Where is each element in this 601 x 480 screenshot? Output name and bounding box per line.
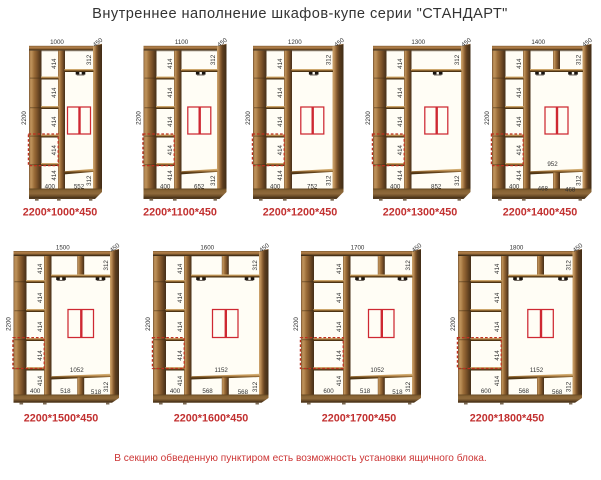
svg-text:312: 312 [103,260,110,271]
svg-text:414: 414 [177,375,184,386]
svg-text:568: 568 [202,388,213,395]
svg-text:312: 312 [454,54,461,65]
svg-text:312: 312 [326,54,333,65]
svg-text:414: 414 [516,170,523,181]
svg-text:414: 414 [397,144,404,155]
svg-text:1500: 1500 [56,245,70,252]
svg-text:1152: 1152 [215,367,229,374]
svg-text:414: 414 [336,321,343,332]
svg-text:414: 414 [37,321,44,332]
svg-text:518: 518 [60,388,71,395]
svg-text:312: 312 [210,175,217,186]
svg-text:600: 600 [323,388,334,395]
svg-text:414: 414 [397,87,404,98]
svg-text:2200*1100*450: 2200*1100*450 [143,206,217,218]
svg-text:1700: 1700 [351,245,365,252]
svg-text:2200*1600*450: 2200*1600*450 [174,412,248,424]
svg-text:952: 952 [547,161,558,168]
svg-text:400: 400 [270,184,281,191]
svg-text:312: 312 [86,54,93,65]
svg-text:414: 414 [51,144,58,155]
svg-text:312: 312 [86,175,93,186]
svg-text:518: 518 [91,389,102,396]
svg-text:312: 312 [454,175,461,186]
svg-text:312: 312 [576,175,583,186]
svg-text:652: 652 [194,183,205,190]
svg-text:1200: 1200 [288,39,302,46]
svg-text:414: 414 [516,116,523,127]
svg-text:414: 414 [51,87,58,98]
svg-text:2200: 2200 [293,317,300,331]
svg-text:414: 414 [397,116,404,127]
svg-text:414: 414 [277,144,284,155]
svg-text:414: 414 [167,58,174,69]
svg-text:414: 414 [494,350,501,361]
svg-text:1152: 1152 [530,367,544,374]
svg-text:414: 414 [516,58,523,69]
svg-text:568: 568 [552,389,563,396]
svg-text:414: 414 [336,263,343,274]
svg-text:1400: 1400 [531,39,545,46]
svg-text:414: 414 [51,116,58,127]
svg-text:312: 312 [252,381,259,392]
svg-text:450: 450 [333,36,346,48]
svg-text:600: 600 [481,388,492,395]
svg-text:414: 414 [494,263,501,274]
svg-text:2200*1200*450: 2200*1200*450 [263,206,337,218]
svg-text:2200: 2200 [245,111,252,125]
svg-text:312: 312 [103,381,110,392]
svg-text:414: 414 [277,170,284,181]
svg-text:2200: 2200 [145,317,152,331]
svg-text:2200*1400*450: 2200*1400*450 [503,206,577,218]
svg-text:414: 414 [177,321,184,332]
svg-text:2200: 2200 [484,111,491,125]
svg-text:414: 414 [167,170,174,181]
svg-text:450: 450 [92,36,105,48]
svg-text:2200: 2200 [135,111,142,125]
svg-text:414: 414 [51,170,58,181]
svg-text:450: 450 [216,36,229,48]
svg-text:312: 312 [566,260,573,271]
svg-text:400: 400 [509,184,520,191]
svg-text:568: 568 [238,389,249,396]
svg-text:450: 450 [411,242,424,254]
svg-text:568: 568 [519,388,530,395]
svg-text:400: 400 [45,184,56,191]
svg-text:1800: 1800 [510,245,524,252]
svg-text:414: 414 [397,58,404,69]
svg-text:2200: 2200 [450,317,457,331]
svg-text:552: 552 [74,183,85,190]
svg-text:2200*1300*450: 2200*1300*450 [383,206,457,218]
svg-text:414: 414 [37,263,44,274]
svg-text:1600: 1600 [200,245,214,252]
svg-text:752: 752 [307,183,318,190]
svg-text:312: 312 [252,260,259,271]
svg-text:414: 414 [516,144,523,155]
svg-text:414: 414 [336,292,343,303]
svg-text:414: 414 [277,87,284,98]
svg-text:312: 312 [326,175,333,186]
svg-text:414: 414 [516,87,523,98]
svg-text:400: 400 [170,388,181,395]
svg-text:1052: 1052 [70,367,84,374]
svg-text:400: 400 [160,184,171,191]
svg-text:2200: 2200 [365,111,372,125]
svg-text:1052: 1052 [370,367,384,374]
svg-text:414: 414 [177,263,184,274]
svg-text:312: 312 [405,381,412,392]
svg-text:414: 414 [37,375,44,386]
svg-text:414: 414 [277,58,284,69]
svg-text:2200*1700*450: 2200*1700*450 [322,412,396,424]
svg-text:414: 414 [37,292,44,303]
svg-text:852: 852 [431,183,442,190]
svg-text:400: 400 [30,388,41,395]
svg-text:1100: 1100 [175,39,189,46]
svg-text:312: 312 [210,54,217,65]
svg-text:414: 414 [167,144,174,155]
svg-text:414: 414 [167,87,174,98]
svg-text:312: 312 [566,381,573,392]
svg-text:450: 450 [572,242,585,254]
svg-text:450: 450 [109,242,122,254]
svg-text:1300: 1300 [411,39,425,46]
svg-text:450: 450 [258,242,271,254]
svg-text:312: 312 [576,54,583,65]
svg-text:2200: 2200 [21,111,28,125]
svg-text:2200: 2200 [5,317,12,331]
svg-text:414: 414 [167,116,174,127]
svg-text:450: 450 [460,36,473,48]
svg-text:2200*1500*450: 2200*1500*450 [24,412,98,424]
svg-text:312: 312 [405,260,412,271]
svg-text:518: 518 [392,389,403,396]
svg-text:518: 518 [360,388,371,395]
svg-text:414: 414 [494,292,501,303]
svg-text:400: 400 [390,184,401,191]
svg-text:414: 414 [37,350,44,361]
svg-text:2200*1800*450: 2200*1800*450 [470,412,544,424]
svg-text:414: 414 [177,350,184,361]
svg-text:414: 414 [494,375,501,386]
svg-text:1000: 1000 [50,39,64,46]
svg-text:В секцию обведенную пунктиром: В секцию обведенную пунктиром есть возмо… [114,452,486,464]
svg-text:450: 450 [581,36,594,48]
svg-text:468: 468 [565,187,576,194]
svg-text:414: 414 [277,116,284,127]
svg-text:414: 414 [397,170,404,181]
svg-text:414: 414 [51,58,58,69]
svg-text:414: 414 [494,321,501,332]
svg-text:414: 414 [177,292,184,303]
svg-text:414: 414 [336,350,343,361]
svg-text:2200*1000*450: 2200*1000*450 [23,206,97,218]
svg-text:468: 468 [538,185,549,192]
svg-text:414: 414 [336,375,343,386]
svg-text:Внутреннее наполнение шкафов-к: Внутреннее наполнение шкафов-купе серии … [92,6,508,22]
